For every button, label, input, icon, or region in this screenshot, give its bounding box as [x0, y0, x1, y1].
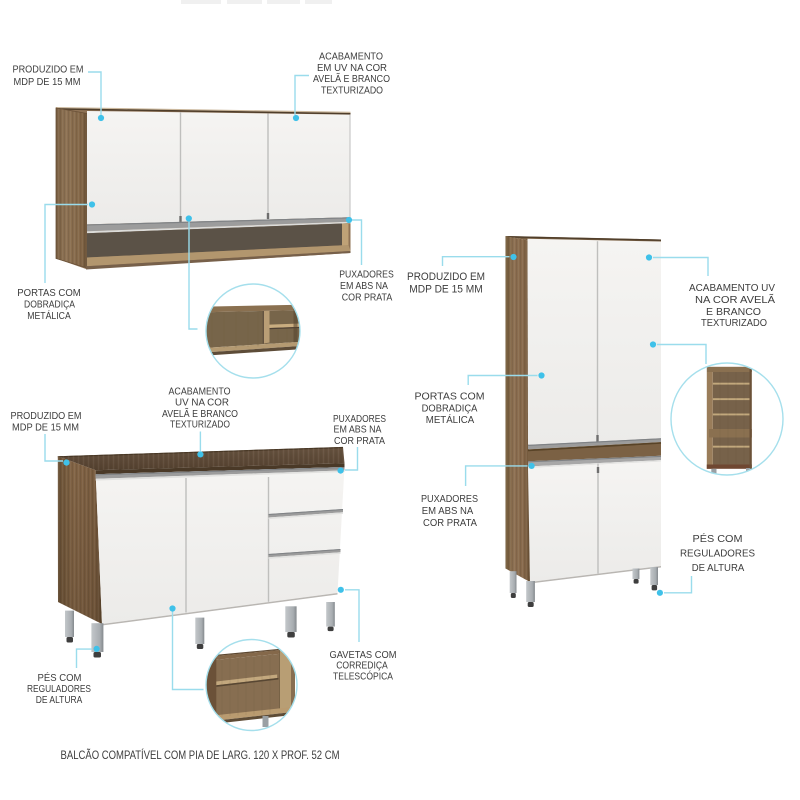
svg-text:AVELÃ E BRANCO: AVELÃ E BRANCO — [313, 72, 390, 85]
svg-text:PRODUZIDO EM: PRODUZIDO EM — [13, 64, 84, 76]
svg-text:EM ABS NA: EM ABS NA — [422, 505, 473, 517]
svg-text:DOBRADIÇA: DOBRADIÇA — [24, 299, 75, 311]
svg-text:METÁLICA: METÁLICA — [27, 309, 71, 322]
svg-text:DE ALTURA: DE ALTURA — [692, 562, 745, 574]
svg-text:COR PRATA: COR PRATA — [423, 517, 477, 529]
svg-text:PORTAS COM: PORTAS COM — [17, 287, 81, 299]
svg-text:PÉS COM: PÉS COM — [693, 532, 743, 545]
svg-text:EM ABS NA: EM ABS NA — [334, 424, 382, 436]
svg-text:DE ALTURA: DE ALTURA — [36, 694, 83, 706]
svg-text:EM ABS NA: EM ABS NA — [340, 280, 388, 292]
svg-text:PRODUZIDO EM: PRODUZIDO EM — [407, 271, 485, 283]
svg-text:PUXADORES: PUXADORES — [421, 493, 478, 505]
svg-text:COR PRATA: COR PRATA — [334, 435, 385, 447]
svg-text:MDP DE 15 MM: MDP DE 15 MM — [12, 422, 79, 434]
svg-text:MDP DE 15 MM: MDP DE 15 MM — [409, 284, 483, 296]
svg-text:ACABAMENTO: ACABAMENTO — [169, 385, 231, 397]
svg-text:COR PRATA: COR PRATA — [342, 292, 393, 304]
svg-text:PRODUZIDO EM: PRODUZIDO EM — [11, 410, 82, 422]
svg-text:TEXTURIZADO: TEXTURIZADO — [701, 317, 767, 329]
svg-text:METÁLICA: METÁLICA — [426, 413, 475, 426]
svg-text:REGULADORES: REGULADORES — [27, 683, 91, 695]
svg-text:PORTAS COM: PORTAS COM — [415, 391, 485, 403]
svg-text:TEXTURIZADO: TEXTURIZADO — [321, 85, 383, 97]
svg-text:REGULADORES: REGULADORES — [680, 548, 755, 560]
svg-text:DOBRADIÇA: DOBRADIÇA — [422, 402, 478, 414]
svg-text:NA COR AVELÃ: NA COR AVELÃ — [695, 293, 775, 306]
svg-text:ACABAMENTO UV: ACABAMENTO UV — [689, 282, 775, 294]
svg-text:MDP DE 15 MM: MDP DE 15 MM — [14, 76, 81, 88]
svg-text:PUXADORES: PUXADORES — [339, 269, 394, 281]
svg-text:TEXTURIZADO: TEXTURIZADO — [170, 419, 230, 431]
svg-text:BALCÃO COMPATÍVEL COM PIA DE L: BALCÃO COMPATÍVEL COM PIA DE LARG. 120 X… — [61, 749, 340, 762]
svg-text:ACABAMENTO: ACABAMENTO — [319, 51, 383, 63]
svg-text:UV NA COR: UV NA COR — [175, 397, 229, 409]
svg-text:TELESCÓPICA: TELESCÓPICA — [333, 670, 393, 683]
